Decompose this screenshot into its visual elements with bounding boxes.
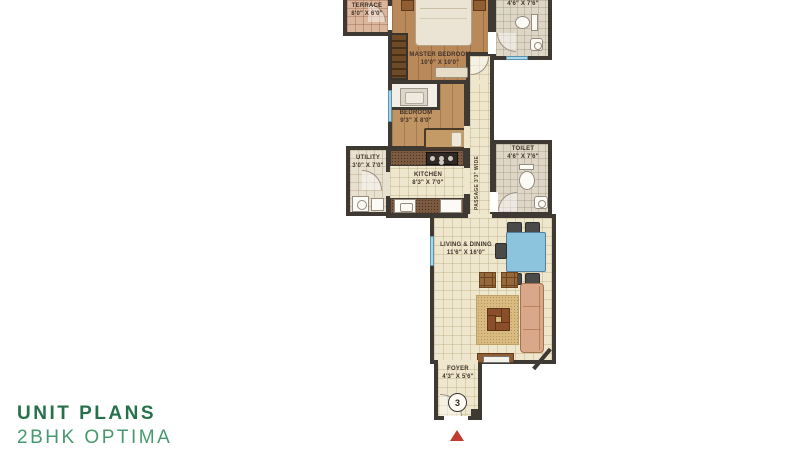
nightstand bbox=[401, 0, 414, 11]
nightstand bbox=[473, 0, 486, 11]
window bbox=[430, 236, 434, 266]
door-opening bbox=[388, 6, 392, 30]
fridge bbox=[440, 199, 462, 213]
floorplan: 3 TERRACE 8'0" X 6'0" MASTER BEDROOM 10'… bbox=[340, 0, 562, 446]
toilet-fixture bbox=[519, 171, 535, 190]
window bbox=[388, 90, 392, 122]
room-name: MASTER BEDROOM bbox=[409, 52, 470, 60]
opening bbox=[468, 214, 492, 218]
toilet-attached-label: 4'6" X 7'6" bbox=[507, 1, 538, 9]
toilet-fixture bbox=[515, 16, 530, 29]
dresser bbox=[435, 67, 468, 78]
door-opening bbox=[488, 32, 496, 54]
stove bbox=[426, 152, 458, 165]
room-toilet-attached bbox=[492, 0, 552, 60]
window bbox=[506, 56, 528, 60]
room-name: LIVING & DINING bbox=[440, 242, 492, 250]
unit-number-badge: 3 bbox=[448, 393, 467, 412]
dining-table bbox=[506, 232, 546, 272]
door-opening bbox=[464, 168, 470, 194]
room-name: KITCHEN bbox=[412, 172, 443, 180]
living-dining-label: LIVING & DINING 11'6" X 16'0" bbox=[440, 242, 492, 257]
room-dims: 8'3" X 7'0" bbox=[412, 180, 443, 188]
page-subtitle: 2BHK OPTIMA bbox=[17, 427, 172, 449]
wall-block bbox=[471, 409, 479, 417]
room-name: FOYER bbox=[442, 366, 473, 374]
door-opening bbox=[464, 126, 470, 148]
door-opening bbox=[383, 172, 390, 196]
passage-label: PASSAGE 3'3" WIDE bbox=[474, 118, 480, 210]
page: 3 TERRACE 8'0" X 6'0" MASTER BEDROOM 10'… bbox=[0, 0, 800, 465]
room-dims: 10'0" X 10'0" bbox=[409, 60, 470, 68]
coffee-table bbox=[486, 307, 509, 330]
unit-number: 3 bbox=[455, 398, 460, 408]
sofa bbox=[520, 283, 544, 353]
opening bbox=[438, 360, 478, 364]
room-name: BEDROOM bbox=[400, 110, 433, 118]
room-dims: 3'0" X 7'0" bbox=[352, 163, 383, 171]
room-dims: 4'6" X 7'6" bbox=[507, 154, 538, 162]
entrance-arrow-icon bbox=[450, 430, 464, 441]
utility-label: UTILITY 3'0" X 7'0" bbox=[352, 155, 383, 170]
entrance-opening bbox=[444, 416, 468, 420]
door-opening bbox=[471, 80, 488, 84]
bedroom-label: BEDROOM 9'3" X 8'0" bbox=[400, 110, 433, 125]
room-name: TOILET bbox=[507, 146, 538, 154]
master-bed bbox=[415, 0, 472, 46]
sink bbox=[530, 38, 543, 51]
sink bbox=[534, 196, 548, 209]
kitchen-label: KITCHEN 8'3" X 7'0" bbox=[412, 172, 443, 187]
room-dims: 8'0" X 6'0" bbox=[351, 11, 382, 19]
room-dims: 4'3" X 5'6" bbox=[442, 374, 473, 382]
utility-sink bbox=[371, 198, 384, 211]
room-dims: 4'6" X 7'6" bbox=[507, 1, 538, 9]
room-dims: 11'6" X 16'0" bbox=[440, 250, 492, 258]
wardrobe bbox=[390, 33, 408, 80]
dining-chair bbox=[495, 243, 507, 259]
foyer-label: FOYER 4'3" X 5'6" bbox=[442, 366, 473, 381]
room-name: UTILITY bbox=[352, 155, 383, 163]
terrace-label: TERRACE 8'0" X 6'0" bbox=[351, 3, 382, 18]
bed bbox=[424, 128, 466, 149]
ottoman bbox=[479, 272, 496, 288]
toilet-label: TOILET 4'6" X 7'6" bbox=[507, 146, 538, 161]
tv-console bbox=[477, 353, 514, 363]
room-name: TERRACE bbox=[351, 3, 382, 11]
door-opening bbox=[490, 192, 498, 212]
toilet-tank bbox=[531, 14, 538, 31]
plan-title-block: UNIT PLANS 2BHK OPTIMA bbox=[17, 403, 172, 449]
ottoman bbox=[501, 272, 518, 288]
kitchen-sink bbox=[394, 199, 416, 213]
washing-machine bbox=[352, 196, 369, 212]
toilet-tank bbox=[519, 164, 534, 170]
cabinet bbox=[400, 88, 428, 106]
master-bedroom-label: MASTER BEDROOM 10'0" X 10'0" bbox=[409, 52, 470, 67]
page-title: UNIT PLANS bbox=[17, 403, 172, 425]
room-dims: 9'3" X 8'0" bbox=[400, 118, 433, 126]
